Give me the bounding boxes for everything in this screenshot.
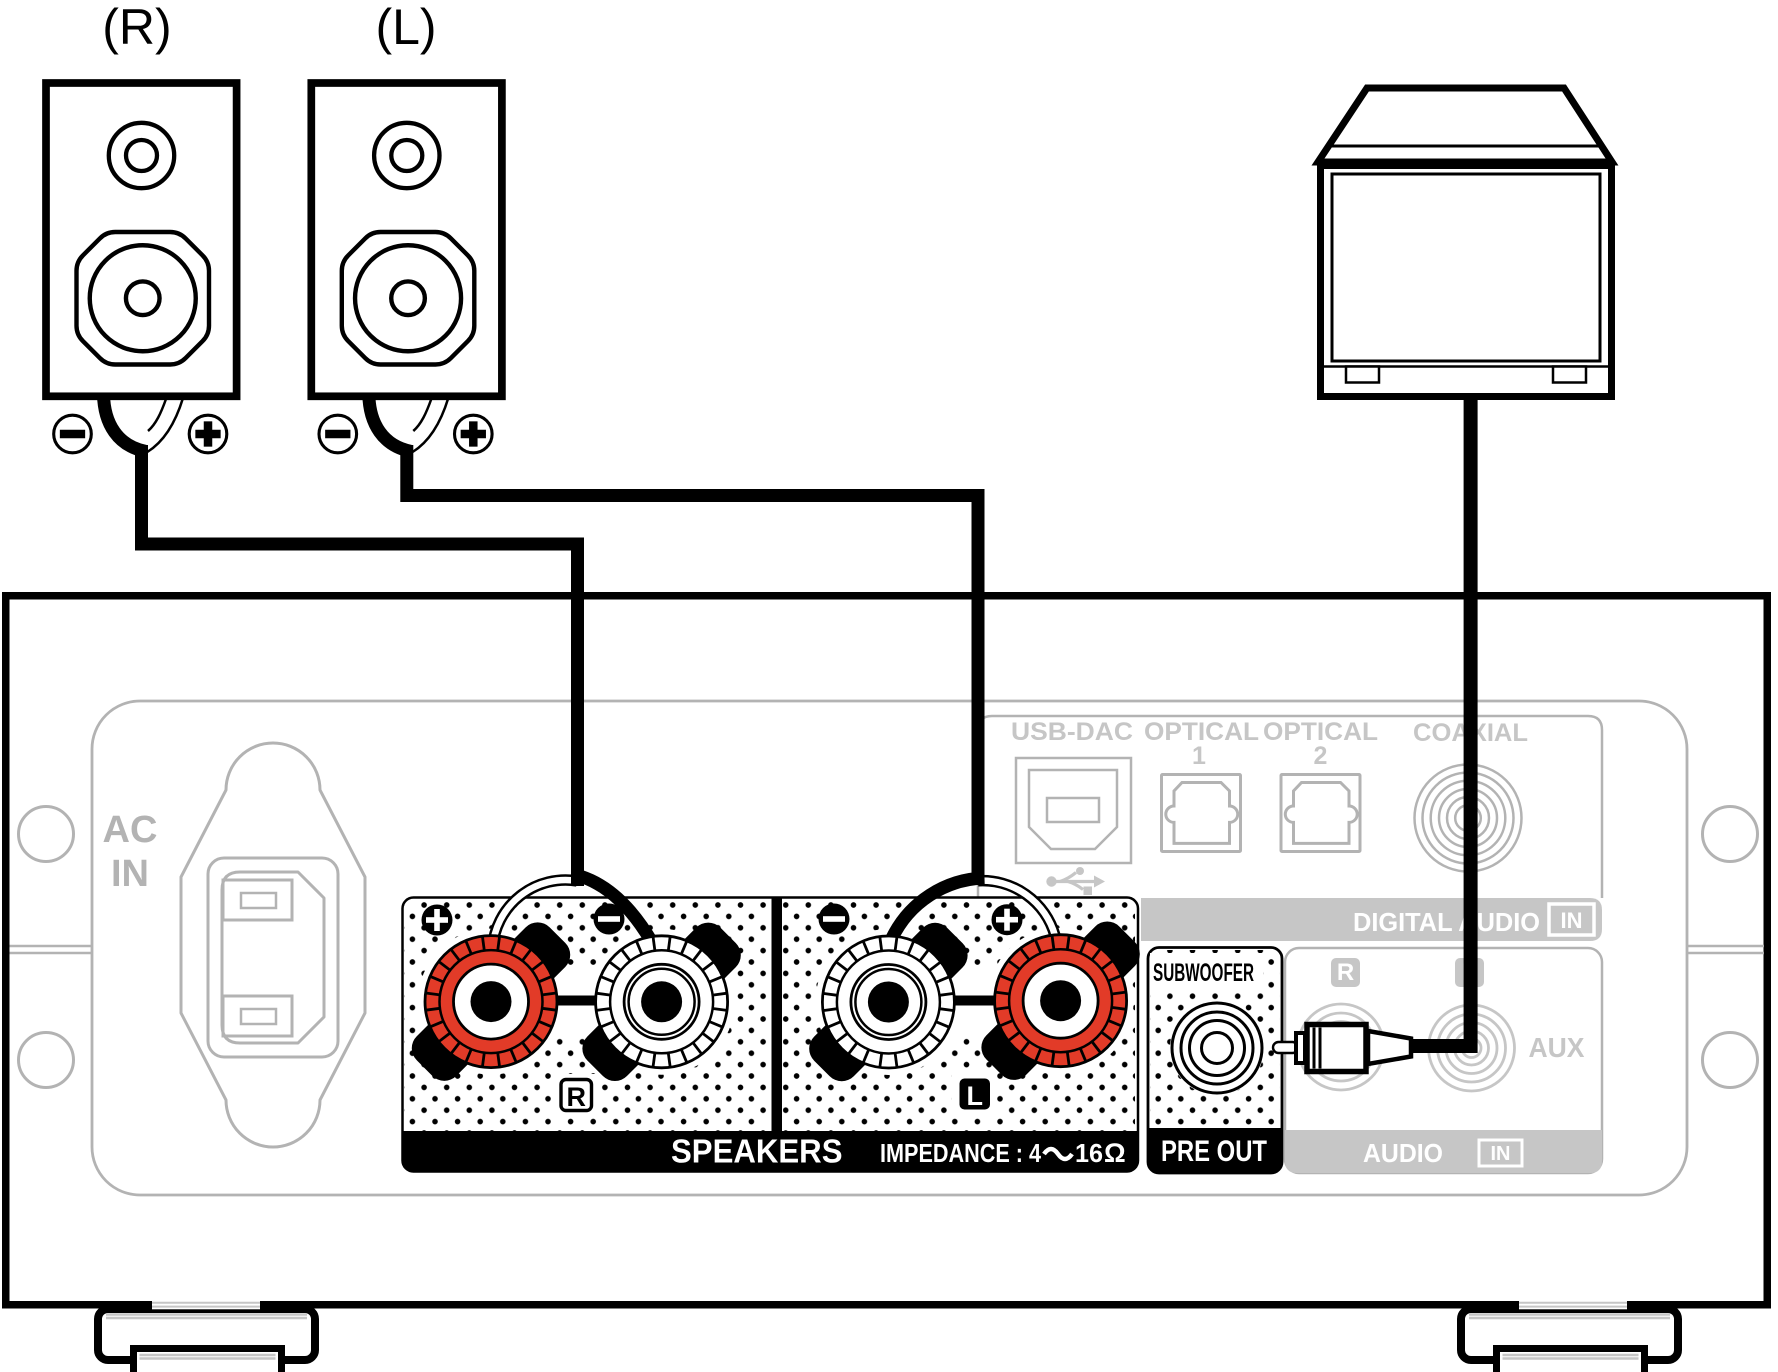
svg-text:R: R [1337,959,1354,986]
svg-text:PRE OUT: PRE OUT [1161,1135,1267,1168]
svg-text:IMPEDANCE : 4: IMPEDANCE : 4 [880,1138,1041,1168]
svg-text:(L): (L) [375,0,436,55]
svg-text:AUX: AUX [1529,1032,1585,1063]
svg-text:SPEAKERS: SPEAKERS [671,1133,843,1170]
svg-text:16: 16 [1075,1138,1103,1168]
svg-text:AC: AC [103,809,158,851]
svg-text:AUDIO: AUDIO [1363,1138,1443,1168]
svg-text:IN: IN [1561,908,1583,933]
svg-text:DIGITAL AUDIO: DIGITAL AUDIO [1353,907,1540,937]
svg-text:SUBWOOFER: SUBWOOFER [1153,959,1254,987]
svg-text:IN: IN [111,853,149,895]
svg-text:(R): (R) [102,0,171,55]
svg-text:L: L [967,1081,984,1111]
svg-text:2: 2 [1314,742,1328,770]
svg-text:IN: IN [1491,1143,1511,1165]
svg-text:Ω: Ω [1104,1138,1126,1168]
svg-text:R: R [567,1082,587,1112]
svg-text:1: 1 [1192,742,1206,770]
svg-text:USB-DAC: USB-DAC [1011,718,1133,746]
